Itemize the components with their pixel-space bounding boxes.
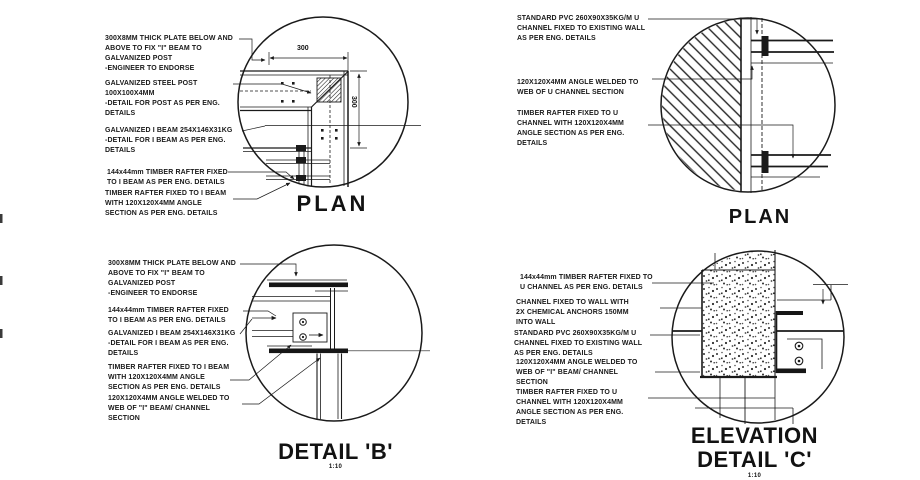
steel-post-section (317, 78, 341, 102)
annotation-plate-note: 300X8MM THICK PLATE BELOW AND ABOVE TO F… (105, 34, 255, 74)
angle-bracket (293, 313, 327, 342)
detail-b-title: DETAIL 'B' (258, 440, 413, 464)
annotation-i-beam-b: GALVANIZED I BEAM 254X146X31KG -DETAIL F… (108, 329, 258, 359)
existing-wall-hatch (661, 18, 741, 192)
annotation-i-beam: GALVANIZED I BEAM 254X146X31KG -DETAIL F… (105, 126, 255, 156)
annotation-rafter-angle: TIMBER RAFTER FIXED TO I BEAM WITH 120X1… (105, 189, 255, 219)
annotation-pvc-channel-c: STANDARD PVC 260X90X35KG/M U CHANNEL FIX… (514, 329, 664, 359)
plan-right-title: PLAN (700, 206, 820, 229)
elevation-c-scale: 1:10 (672, 473, 837, 479)
annotation-timber-rafter-b: 144x44mm TIMBER RAFTER FIXED TO I BEAM A… (108, 306, 258, 326)
bottom-plate (269, 349, 348, 354)
annotation-plate-note-b: 300X8MM THICK PLATE BELOW AND ABOVE TO F… (108, 259, 258, 299)
lower-grid (695, 377, 793, 424)
plan-right-drawing (648, 17, 835, 193)
elevation-c-title: ELEVATION DETAIL 'C' (672, 424, 837, 472)
post-below (317, 354, 342, 420)
elevation-c-drawing (648, 250, 848, 424)
annotation-angle-web-c: 120X120X4MM ANGLE WELDED TO WEB OF "I" B… (516, 358, 666, 388)
dimension-label-width: 300 (297, 45, 309, 52)
annotation-pvc-channel: STANDARD PVC 260X90X35KG/M U CHANNEL FIX… (517, 14, 667, 44)
detail-b-scale: 1:10 (258, 464, 413, 470)
annotation-rafter-angle-c: TIMBER RAFTER FIXED TO U CHANNEL WITH 12… (516, 388, 666, 428)
top-plate (269, 283, 348, 288)
sheet-edge-marks (0, 214, 3, 338)
cad-sheet: 300X8MM THICK PLATE BELOW AND ABOVE TO F… (0, 0, 920, 480)
bolts (300, 319, 307, 341)
annotation-rafter-angle-b: TIMBER RAFTER FIXED TO I BEAM WITH 120X1… (108, 363, 258, 393)
annotation-timber-rafter: 144x44mm TIMBER RAFTER FIXED TO I BEAM A… (107, 168, 257, 188)
concrete-wall (702, 252, 775, 377)
bolts (795, 342, 803, 365)
annotation-rafter-u-channel: TIMBER RAFTER FIXED TO U CHANNEL WITH 12… (517, 109, 667, 149)
dimension-label-height: 300 (350, 96, 357, 108)
annotation-rafter-c: 144x44mm TIMBER RAFTER FIXED TO U CHANNE… (520, 273, 670, 293)
plan-left-title: PLAN (270, 191, 395, 217)
detail-b-drawing (230, 245, 430, 421)
annotation-angle-web-b: 120X120X4MM ANGLE WELDED TO WEB OF "I" B… (108, 394, 258, 424)
bottom-bracket (751, 151, 831, 177)
annotation-anchors-c: CHANNEL FIXED TO WALL WITH 2X CHEMICAL A… (516, 298, 666, 328)
bolt-assembly (296, 145, 306, 181)
annotation-steel-post: GALVANIZED STEEL POST 100X100X4MM -DETAI… (105, 79, 255, 119)
annotation-angle-welded: 120X120X4MM ANGLE WELDED TO WEB OF U CHA… (517, 78, 667, 98)
